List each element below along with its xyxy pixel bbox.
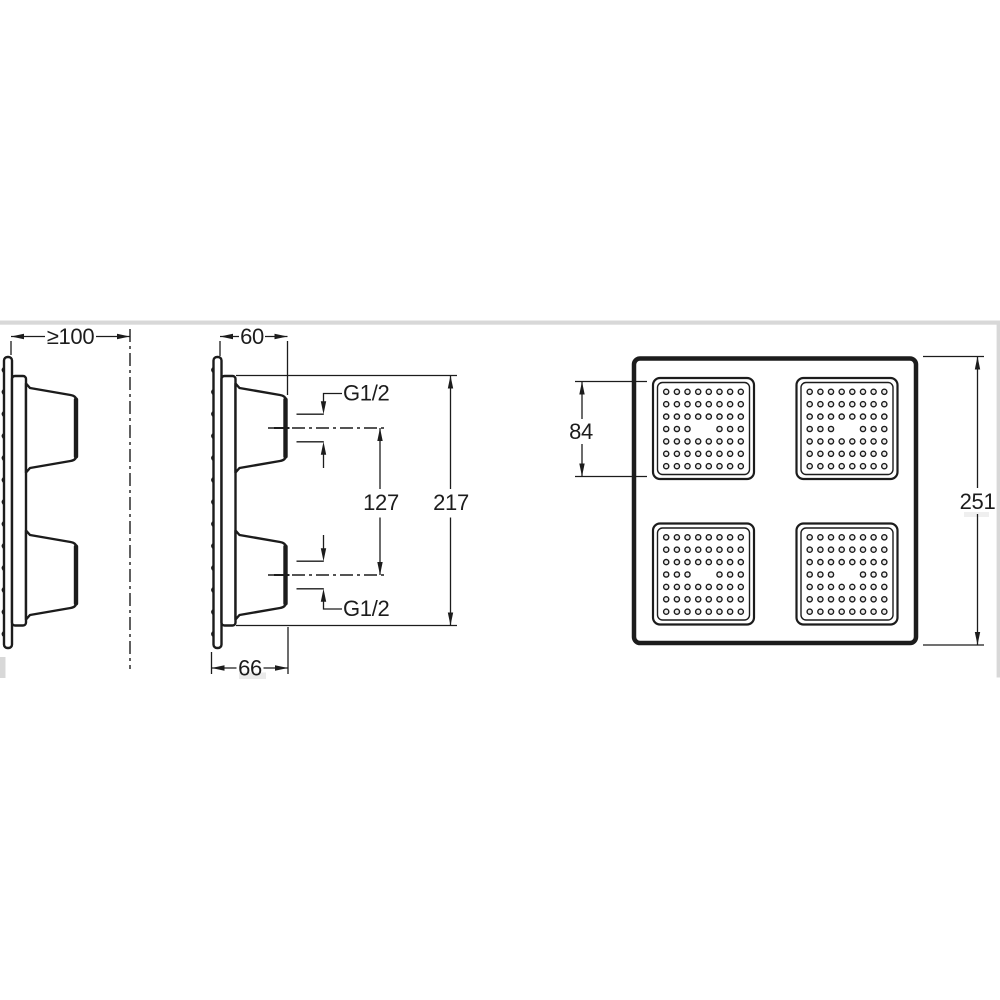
nozzle-dot	[664, 464, 669, 469]
nozzle-dot	[839, 464, 844, 469]
nozzle-dot	[696, 597, 701, 602]
nozzle-dot	[674, 451, 679, 456]
nozzle-dot	[807, 609, 812, 614]
dim-min-wall-distance: ≥100	[11, 324, 130, 355]
nozzle-dot	[828, 597, 833, 602]
nozzle-dot	[696, 451, 701, 456]
nozzle-dot	[674, 414, 679, 419]
nozzle-dot	[717, 597, 722, 602]
nozzle-dot	[717, 414, 722, 419]
nozzle-dot	[828, 547, 833, 552]
dim-arrow	[448, 376, 453, 389]
nozzle-dot	[807, 535, 812, 540]
nozzle-dot	[839, 451, 844, 456]
nozzle-dot	[828, 464, 833, 469]
nozzle-dot	[818, 439, 823, 444]
nozzle-dot	[818, 464, 823, 469]
side-view-left: ≥100	[2, 324, 130, 669]
nozzle-dot	[828, 572, 833, 577]
nozzle-dot	[850, 535, 855, 540]
nozzle-dot	[706, 439, 711, 444]
nozzle-dot	[664, 609, 669, 614]
viewer-right-band	[997, 321, 1000, 678]
nozzle-dot	[828, 560, 833, 565]
nozzle-dot	[706, 464, 711, 469]
panel-inner-frame	[801, 528, 893, 620]
nozzle-dot	[860, 439, 865, 444]
nozzle-dot	[818, 389, 823, 394]
nozzle-dot	[850, 414, 855, 419]
nozzle-dot	[674, 426, 679, 431]
nozzle-dot	[807, 572, 812, 577]
nozzle-dot	[860, 547, 865, 552]
nozzle-dot	[685, 464, 690, 469]
nozzle-dot	[828, 439, 833, 444]
nozzle-dot	[738, 609, 743, 614]
nozzle-dot	[717, 609, 722, 614]
nozzle-dot	[738, 402, 743, 407]
nozzle-dot	[717, 439, 722, 444]
nozzle-dot	[839, 414, 844, 419]
nozzle-dot	[818, 402, 823, 407]
nozzle-dot	[828, 402, 833, 407]
nozzle-dot	[738, 414, 743, 419]
dim-arrow	[579, 382, 584, 395]
nozzle-dot	[850, 439, 855, 444]
nozzle-dot	[807, 560, 812, 565]
nozzle-dot	[696, 535, 701, 540]
nozzle-dot	[728, 464, 733, 469]
nozzle-dot	[685, 597, 690, 602]
nozzle-dot	[674, 572, 679, 577]
nozzle-dot	[860, 535, 865, 540]
nozzle-dot	[871, 464, 876, 469]
nozzle-dot	[664, 451, 669, 456]
nozzle-dot	[696, 414, 701, 419]
nozzle-dot	[706, 389, 711, 394]
nozzle-dot	[860, 451, 865, 456]
nozzle-dot	[807, 426, 812, 431]
dim-arrow	[220, 334, 233, 339]
nozzle-dot	[717, 535, 722, 540]
nozzle-dot	[706, 547, 711, 552]
nozzle-dot	[871, 389, 876, 394]
nozzle-dot	[871, 451, 876, 456]
nozzle-dot	[738, 439, 743, 444]
dim-label-sprayface: 84	[569, 419, 593, 444]
nozzle-dot	[664, 572, 669, 577]
mounting-flange	[222, 376, 236, 626]
nozzle-dot	[706, 560, 711, 565]
nozzle-dot	[664, 414, 669, 419]
nozzle-dot	[860, 584, 865, 589]
nozzle-dot	[871, 609, 876, 614]
dim-arrow	[11, 334, 24, 339]
nozzle-dot	[818, 572, 823, 577]
nozzle-dot	[882, 451, 887, 456]
nozzle-dot	[860, 609, 865, 614]
dim-label-overall-height: 217	[433, 490, 469, 515]
nozzle-dot	[807, 597, 812, 602]
nozzle-dot	[706, 414, 711, 419]
nozzle-dot	[696, 560, 701, 565]
dim-arrow	[275, 665, 288, 670]
nozzle-dot	[674, 584, 679, 589]
front-view: 84 251	[569, 357, 995, 646]
nozzle-dot	[860, 414, 865, 419]
leader-line	[324, 394, 343, 403]
nozzle-dot	[807, 584, 812, 589]
nozzle-dot	[685, 414, 690, 419]
nozzle-dot	[685, 547, 690, 552]
nozzle-dot	[818, 597, 823, 602]
nozzle-dot	[717, 464, 722, 469]
nozzle-dot	[696, 464, 701, 469]
nozzle-dot	[696, 609, 701, 614]
nozzle-dot	[818, 414, 823, 419]
nozzle-dot	[882, 389, 887, 394]
nozzle-dot	[728, 414, 733, 419]
nozzle-dot	[685, 426, 690, 431]
nozzle-dot	[871, 535, 876, 540]
nozzle-dot	[685, 572, 690, 577]
nozzle-dot	[860, 402, 865, 407]
nozzle-dot	[850, 402, 855, 407]
nozzle-dot	[706, 402, 711, 407]
nozzle-dot	[860, 426, 865, 431]
nozzle-dot	[828, 609, 833, 614]
nozzle-dot	[674, 547, 679, 552]
viewer-left-corner-band	[0, 657, 6, 678]
nozzle-dot	[674, 464, 679, 469]
nozzle-dot	[860, 572, 865, 577]
dim-arrow	[117, 334, 130, 339]
dim-arrow	[975, 632, 980, 645]
nozzle-dot	[871, 439, 876, 444]
nozzle-dot	[674, 535, 679, 540]
nozzle-dot	[717, 451, 722, 456]
nozzle-dot	[696, 439, 701, 444]
nozzle-dot	[850, 560, 855, 565]
nozzle-dot	[839, 609, 844, 614]
nozzle-dot	[807, 439, 812, 444]
nozzle-dot	[706, 609, 711, 614]
nozzle-dot	[818, 426, 823, 431]
dim-arrow	[377, 428, 382, 441]
dim-label-depth-top: 60	[240, 324, 264, 349]
nozzle-dot	[728, 597, 733, 602]
dim-arrow	[321, 401, 326, 414]
technical-drawing-page: ≥100 60	[0, 0, 1000, 1000]
nozzle-dot	[818, 451, 823, 456]
nozzle-dot	[807, 414, 812, 419]
nozzle-dot	[828, 451, 833, 456]
nozzle-dot	[871, 547, 876, 552]
nozzle-dot	[717, 560, 722, 565]
nozzle-dot	[850, 464, 855, 469]
nozzle-dot	[728, 547, 733, 552]
nozzle-dot	[728, 560, 733, 565]
nozzle-dot	[728, 439, 733, 444]
spray-panel-top-right	[797, 378, 898, 479]
nozzle-dot	[706, 451, 711, 456]
nozzle-dot	[828, 389, 833, 394]
nozzle-dot	[738, 535, 743, 540]
nozzle-dot	[706, 597, 711, 602]
nozzle-dot	[696, 402, 701, 407]
nozzle-dot	[738, 426, 743, 431]
nozzle-dot	[717, 389, 722, 394]
nozzle-dot	[728, 426, 733, 431]
dim-arrow	[321, 589, 326, 602]
housing-top	[26, 384, 76, 473]
nozzle-dot	[674, 560, 679, 565]
nozzle-dot	[850, 609, 855, 614]
viewer-top-band	[0, 321, 1000, 325]
nozzle-dot	[674, 389, 679, 394]
dim-arrow	[579, 464, 584, 477]
nozzle-dot	[738, 451, 743, 456]
nozzle-dot	[717, 402, 722, 407]
nozzle-dot	[839, 439, 844, 444]
nozzle-dot	[871, 426, 876, 431]
nozzle-dot	[839, 560, 844, 565]
nozzle-dot	[685, 439, 690, 444]
nozzle-dot	[882, 402, 887, 407]
nozzle-dot	[664, 389, 669, 394]
nozzle-dot	[685, 402, 690, 407]
nozzle-dot	[839, 547, 844, 552]
nozzle-dot	[871, 584, 876, 589]
nozzle-dot	[807, 402, 812, 407]
nozzle-dot	[664, 426, 669, 431]
nozzle-dot	[807, 389, 812, 394]
dim-arrow	[275, 334, 288, 339]
nozzle-dot	[871, 560, 876, 565]
nozzle-dot	[664, 597, 669, 602]
nozzle-dot	[828, 426, 833, 431]
dim-label-depth-bottom: 66	[238, 656, 262, 681]
nozzle-dot	[850, 389, 855, 394]
nozzle-dot	[882, 572, 887, 577]
dim-label-min-wall-distance: ≥100	[47, 324, 95, 349]
nozzle-dot	[738, 389, 743, 394]
nozzle-dot	[850, 597, 855, 602]
nozzle-dot	[871, 597, 876, 602]
label-inlet-top: G1/2	[343, 381, 390, 406]
nozzle-dot	[664, 535, 669, 540]
nozzle-dot	[850, 584, 855, 589]
nozzle-dot	[860, 597, 865, 602]
nozzle-dot	[882, 597, 887, 602]
nozzle-dot	[860, 389, 865, 394]
nozzle-dot	[818, 535, 823, 540]
mounting-flange	[12, 376, 26, 626]
nozzle-dot	[728, 609, 733, 614]
nozzle-dot	[685, 609, 690, 614]
nozzle-dot	[828, 584, 833, 589]
nozzle-dot	[685, 560, 690, 565]
dim-arrow	[321, 442, 326, 455]
nozzle-dot	[882, 414, 887, 419]
nozzle-dot	[818, 547, 823, 552]
nozzle-dot	[839, 597, 844, 602]
nozzle-dot	[685, 389, 690, 394]
nozzle-dot	[674, 609, 679, 614]
dim-arrow	[448, 613, 453, 626]
nozzle-dot	[828, 535, 833, 540]
nozzle-dot	[685, 535, 690, 540]
nozzle-dot	[839, 584, 844, 589]
nozzle-dot	[738, 572, 743, 577]
nozzle-dot	[664, 560, 669, 565]
spray-panel-top-left	[653, 378, 754, 479]
spray-panel-bottom-left	[653, 524, 754, 625]
dim-depth-66: 66	[212, 627, 289, 681]
nozzle-dot	[728, 572, 733, 577]
side-view-middle: 60 66 G1/2	[211, 324, 469, 681]
dim-arrow	[321, 548, 326, 561]
nozzle-dot	[728, 535, 733, 540]
nozzle-dot	[674, 402, 679, 407]
dim-overall-251: 251	[923, 357, 995, 646]
nozzle-dot	[674, 597, 679, 602]
nozzle-dot	[839, 535, 844, 540]
nozzle-dot	[807, 451, 812, 456]
dim-label-inlet-spacing: 127	[363, 490, 399, 515]
nozzle-dot	[882, 609, 887, 614]
nozzle-dot	[728, 402, 733, 407]
nozzle-dot	[828, 414, 833, 419]
nozzle-dot	[818, 584, 823, 589]
nozzle-dot	[728, 584, 733, 589]
nozzle-dot	[818, 560, 823, 565]
nozzle-dot	[717, 572, 722, 577]
nozzle-dot	[706, 535, 711, 540]
inlet-callout-bottom: G1/2	[297, 535, 390, 621]
nozzle-dot	[717, 547, 722, 552]
nozzle-dot	[807, 464, 812, 469]
nozzle-dot	[696, 547, 701, 552]
nozzle-dot	[860, 560, 865, 565]
dim-arrow	[377, 562, 382, 575]
nozzle-dot	[717, 584, 722, 589]
leader-line	[324, 601, 343, 609]
nozzle-dot	[696, 389, 701, 394]
nozzle-dot	[664, 439, 669, 444]
nozzle-dot	[850, 451, 855, 456]
nozzle-dot	[818, 609, 823, 614]
nozzle-dot	[882, 426, 887, 431]
nozzle-dot	[882, 560, 887, 565]
nozzle-dot	[882, 439, 887, 444]
nozzle-dot	[839, 389, 844, 394]
nozzle-dot	[738, 464, 743, 469]
dim-arrow	[975, 357, 980, 370]
nozzle-dot	[738, 597, 743, 602]
panel-inner-frame	[658, 383, 750, 475]
label-inlet-bottom: G1/2	[343, 596, 390, 621]
dim-arrow	[212, 665, 225, 670]
nozzle-dot	[850, 547, 855, 552]
panel-inner-frame	[658, 528, 750, 620]
dim-inlet-spacing-127: 127	[363, 428, 399, 575]
nozzle-dot	[664, 402, 669, 407]
nozzle-dot	[871, 402, 876, 407]
nozzle-dot	[871, 414, 876, 419]
nozzle-dot	[664, 584, 669, 589]
nozzle-dot	[696, 584, 701, 589]
nozzle-dot	[738, 584, 743, 589]
nozzle-dot	[664, 547, 669, 552]
inlet-callout-top: G1/2	[297, 381, 390, 469]
housing-bottom	[26, 531, 76, 620]
nozzle-dot	[882, 464, 887, 469]
nozzle-dot	[839, 402, 844, 407]
nozzle-dot	[807, 547, 812, 552]
nozzle-dot	[882, 547, 887, 552]
nozzle-dot	[728, 451, 733, 456]
nozzle-dot	[882, 535, 887, 540]
nozzle-dot	[674, 439, 679, 444]
nozzle-dot	[706, 584, 711, 589]
shower-installation-drawing: ≥100 60	[0, 0, 1000, 1000]
nozzle-dot	[860, 464, 865, 469]
nozzle-dot	[882, 584, 887, 589]
panel-inner-frame	[801, 383, 893, 475]
nozzle-dot	[871, 572, 876, 577]
nozzle-dot	[717, 426, 722, 431]
dim-label-overall: 251	[960, 489, 996, 514]
spray-panel-bottom-right	[797, 524, 898, 625]
nozzle-dot	[738, 547, 743, 552]
nozzle-dot	[728, 389, 733, 394]
nozzle-dot	[685, 584, 690, 589]
nozzle-dot	[685, 451, 690, 456]
nozzle-dot	[738, 560, 743, 565]
